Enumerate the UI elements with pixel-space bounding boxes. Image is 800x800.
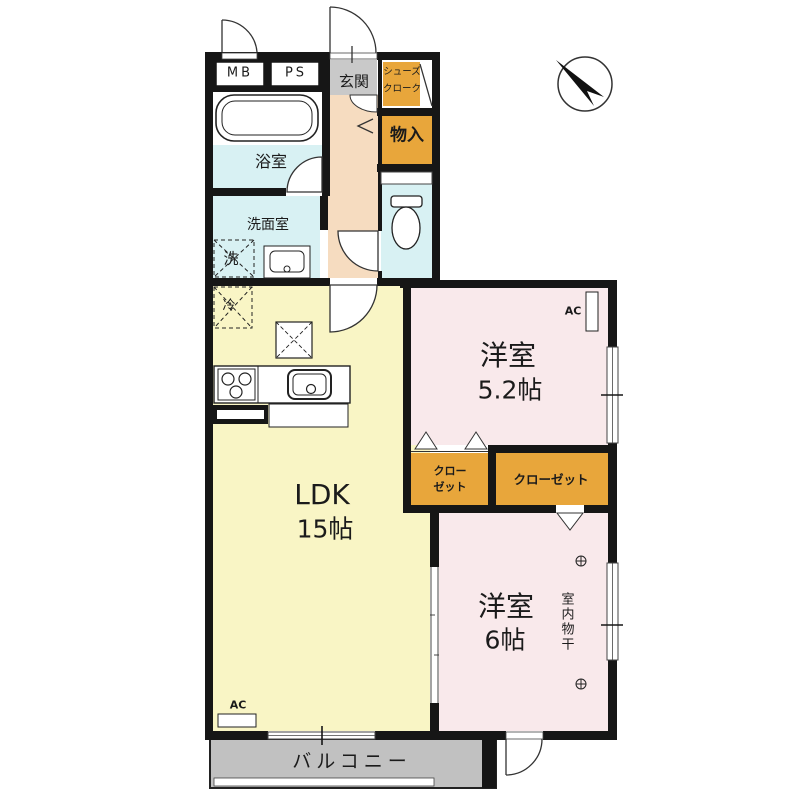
refrigerator-label: 冷 (222, 300, 235, 313)
bedroom-6-name-label: 洋室 (478, 593, 534, 621)
closet-large-label: クローゼット (513, 474, 588, 487)
mb-label: MB (227, 67, 253, 80)
shoe-closet-label-line2: クローク (383, 84, 421, 94)
bathroom-label: 浴室 (255, 154, 287, 170)
bedroom-5-2-size-label: 5.2帖 (478, 378, 543, 403)
closet-small-label-line2: ゼット (434, 482, 467, 493)
closet-small-floor (411, 453, 488, 505)
bedroom-5-2-name-label: 洋室 (480, 342, 536, 370)
toilet-icon (391, 196, 422, 249)
floor-plan-page: MB PS 玄関 シューズ クローク 物入 浴室 洗面室 洗 冷 LDK 15帖… (0, 0, 800, 800)
storage-label: 物入 (390, 128, 424, 145)
ac-ldk-label: AC (230, 700, 247, 711)
ldk-name-label: LDK (294, 481, 350, 509)
toilet-window (381, 172, 432, 184)
ldk-size-label: 15帖 (297, 517, 354, 542)
washing-machine-label: 洗 (223, 252, 238, 267)
ps-label: PS (285, 67, 307, 80)
ac-unit-bedroom (586, 292, 598, 331)
balcony-label: バルコニー (292, 753, 412, 772)
entrance-label: 玄関 (339, 75, 369, 90)
north-arrow-icon (556, 57, 612, 111)
bedroom-6-exterior-door-swing (506, 739, 542, 775)
mb-door-opening (222, 53, 257, 59)
kitchen-counter-icon (213, 366, 350, 427)
indoor-drying-label: 室内物干 (560, 592, 573, 652)
shoe-closet-label-line1: シューズ (383, 67, 421, 77)
ac-bedroom-label: AC (565, 306, 582, 317)
bedroom-6-size-label: 6帖 (485, 628, 526, 653)
balcony-edge (214, 778, 434, 786)
floor-plan-drawing (0, 0, 800, 800)
bath-tub-area (213, 92, 322, 145)
entrance-door-opening (330, 53, 377, 59)
mb-door-swing (222, 20, 257, 52)
vanity-sink-icon (264, 246, 310, 278)
balcony-side-wall (482, 739, 496, 788)
cupboard-icon (276, 322, 312, 358)
washroom-label: 洗面室 (247, 218, 289, 232)
closet-small-label-line1: クロー (434, 466, 467, 477)
ldk-bedroom6-sliding-door (430, 567, 439, 703)
bedroom-6-door-opening (506, 732, 543, 739)
ac-unit-ldk (218, 714, 256, 727)
